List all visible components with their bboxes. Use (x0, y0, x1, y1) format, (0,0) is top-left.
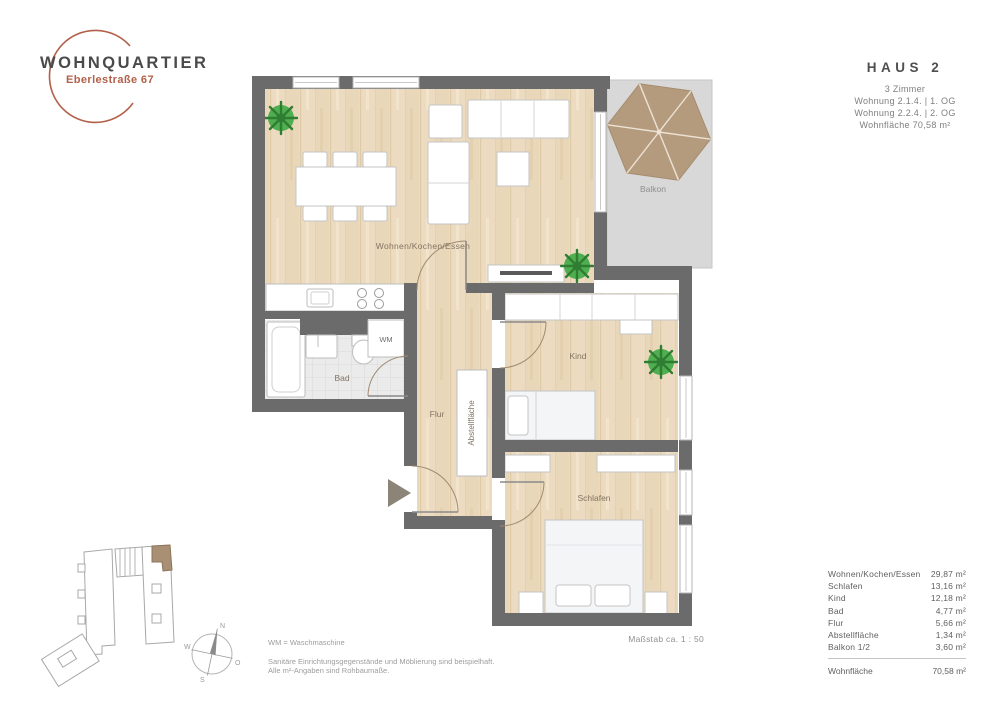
entrance-arrow-icon (388, 479, 411, 507)
dining-chair (333, 152, 357, 167)
nightstand (645, 592, 667, 614)
kind-bed (505, 391, 595, 440)
row-label: Bad (828, 605, 844, 617)
row-label: Schlafen (828, 580, 863, 592)
plant-icon (645, 346, 677, 378)
schlafen-wardrobe (597, 455, 675, 472)
table-row: Kind 12,18 m² (828, 592, 966, 604)
table-row: Schlafen 13,16 m² (828, 580, 966, 592)
living-label: Wohnen/Kochen/Essen (376, 241, 470, 251)
table-row: Flur 5,66 m² (828, 617, 966, 629)
pillow (556, 585, 591, 606)
schlafen-wardrobe (505, 455, 550, 472)
plant-icon (561, 250, 593, 282)
note-line-2: Alle m²-Angaben sind Rohbaumaße. (268, 666, 548, 676)
table-row: Balkon 1/2 3,60 m² (828, 641, 966, 653)
bad-label: Bad (334, 373, 349, 383)
armchair (429, 105, 462, 138)
row-value: 12,18 m² (931, 592, 966, 604)
compass-needle (210, 629, 217, 656)
row-label: Flur (828, 617, 843, 629)
table-row: Wohnen/Kochen/Essen 29,87 m² (828, 568, 966, 580)
window (680, 470, 692, 515)
kind-label: Kind (569, 351, 586, 361)
row-label: Abstellfläche (828, 629, 879, 641)
row-value: 4,77 m² (936, 605, 966, 617)
compass-icon: N W O S (184, 623, 241, 684)
dining-chair (363, 152, 387, 167)
bathtub (267, 322, 305, 397)
window (353, 77, 419, 88)
compass-n: N (220, 623, 225, 630)
row-label: Wohnen/Kochen/Essen (828, 568, 920, 580)
compass-s: S (200, 677, 205, 684)
nightstand (519, 592, 543, 614)
double-bed (545, 520, 643, 613)
window (293, 77, 339, 88)
note-line-1: Sanitäre Einrichtungsgegenstände und Möb… (268, 657, 548, 667)
site-key-plan (42, 545, 174, 686)
row-label: Kind (828, 592, 846, 604)
coffee-table (497, 152, 529, 186)
flur-label: Flur (430, 409, 445, 419)
compass-o: O (235, 660, 241, 667)
kitchen-counter (266, 284, 414, 311)
table-row: Bad 4,77 m² (828, 605, 966, 617)
compass-w: W (184, 644, 191, 651)
kind-shelf (620, 320, 652, 334)
tv-sideboard (488, 265, 564, 282)
pillow (595, 585, 630, 606)
bath-partition-wall (300, 318, 368, 335)
table-divider (828, 658, 966, 659)
total-label: Wohnfläche (828, 665, 873, 677)
table-row: Abstellfläche 1,34 m² (828, 629, 966, 641)
storage-closet: Abstellfläche (457, 370, 487, 476)
loveseat (428, 142, 469, 224)
schlafen-label: Schlafen (577, 493, 610, 503)
dining-chair (303, 206, 327, 221)
table-total-row: Wohnfläche 70,58 m² (828, 665, 966, 677)
window (680, 525, 692, 593)
window (680, 376, 692, 440)
balcony-door-window (595, 112, 606, 212)
row-value: 3,60 m² (936, 641, 966, 653)
pillow (508, 396, 528, 435)
row-value: 29,87 m² (931, 568, 966, 580)
row-value: 5,66 m² (936, 617, 966, 629)
dining-chair (363, 206, 387, 221)
scale-note: Maßstab ca. 1 : 50 (500, 634, 704, 644)
row-value: 13,16 m² (931, 580, 966, 592)
balcony: Balkon (607, 80, 712, 268)
row-value: 1,34 m² (936, 629, 966, 641)
dining-table (296, 167, 396, 206)
row-label: Balkon 1/2 (828, 641, 870, 653)
plant-icon (265, 102, 297, 134)
storage-label: Abstellfläche (467, 400, 476, 446)
dining-chair (303, 152, 327, 167)
wm-label: WM (379, 335, 392, 344)
dining-chair (333, 206, 357, 221)
tv (500, 271, 552, 275)
bath-sink (306, 335, 337, 358)
kind-wardrobe (505, 294, 678, 320)
floor-plan-page: { "logo": { "title": "WOHNQUARTIER", "su… (0, 0, 1000, 707)
balcony-label: Balkon (640, 184, 666, 194)
sofa (468, 100, 569, 138)
total-value: 70,58 m² (932, 665, 966, 677)
area-table: Wohnen/Kochen/Essen 29,87 m² Schlafen 13… (828, 568, 966, 677)
